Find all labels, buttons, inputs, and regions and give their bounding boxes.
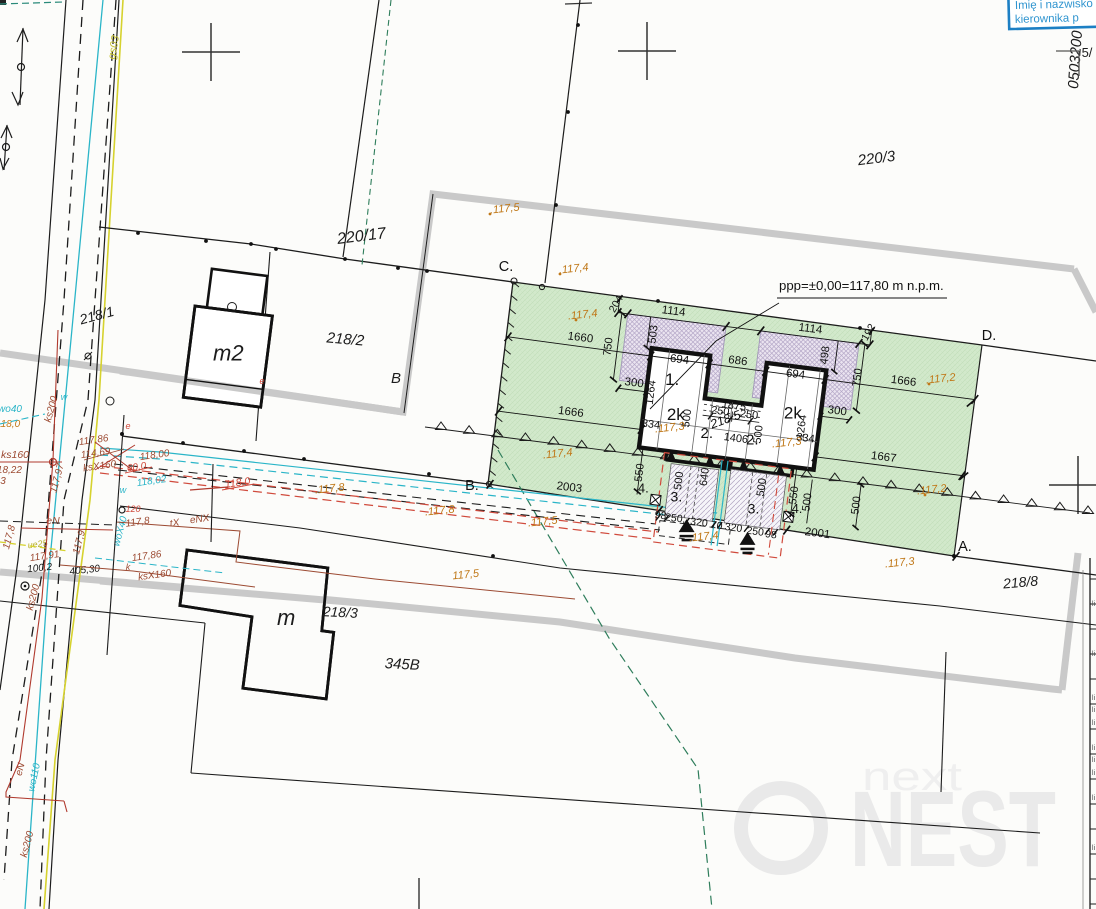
svg-text:3.: 3. xyxy=(748,500,760,516)
svg-text:w: w xyxy=(120,485,127,495)
svg-text:500: 500 xyxy=(849,496,863,516)
svg-text:500: 500 xyxy=(755,477,769,497)
svg-text:750: 750 xyxy=(851,368,865,388)
svg-text:li: li xyxy=(1092,843,1096,852)
svg-text:next: next xyxy=(862,755,962,799)
svg-text:118,22: 118,22 xyxy=(0,465,22,476)
svg-text:694: 694 xyxy=(785,367,806,381)
svg-text:m2: m2 xyxy=(213,341,244,366)
svg-text:m: m xyxy=(277,605,295,630)
svg-text:3: 3 xyxy=(0,476,6,487)
svg-text:A.: A. xyxy=(958,539,972,555)
svg-text:320: 320 xyxy=(724,521,743,535)
svg-text:500: 500 xyxy=(800,492,814,512)
svg-text:li: li xyxy=(1092,793,1096,802)
svg-text:503: 503 xyxy=(646,324,660,344)
svg-text:kierownika p: kierownika p xyxy=(1015,12,1079,26)
svg-text:345B: 345B xyxy=(384,655,420,674)
svg-text:li: li xyxy=(1092,718,1096,727)
svg-text:ks160: ks160 xyxy=(1,449,29,461)
svg-text:li: li xyxy=(1092,649,1096,658)
svg-text:4.: 4. xyxy=(792,501,803,516)
svg-text:250: 250 xyxy=(746,525,765,539)
svg-text:li: li xyxy=(1092,743,1096,752)
svg-text:98: 98 xyxy=(764,528,777,541)
svg-text:e: e xyxy=(259,376,264,386)
svg-text:218/2: 218/2 xyxy=(325,329,366,349)
svg-text:686: 686 xyxy=(728,354,749,368)
svg-text:4.: 4. xyxy=(638,480,649,495)
svg-text:750: 750 xyxy=(601,337,615,357)
svg-text:300: 300 xyxy=(827,404,848,418)
svg-text:li: li xyxy=(1092,599,1096,608)
svg-text:5/: 5/ xyxy=(1082,45,1093,60)
svg-text:300: 300 xyxy=(624,376,645,390)
svg-text:li: li xyxy=(1092,705,1096,714)
svg-text:B: B xyxy=(391,370,401,387)
svg-text:wo40: wo40 xyxy=(0,404,22,415)
svg-text:li: li xyxy=(1092,755,1096,764)
svg-text:218/8: 218/8 xyxy=(1001,573,1039,592)
svg-text:D.: D. xyxy=(982,328,997,344)
svg-text:694: 694 xyxy=(669,353,690,367)
svg-text:1.: 1. xyxy=(665,370,679,389)
svg-text:3.: 3. xyxy=(671,489,683,505)
svg-text:218/3: 218/3 xyxy=(321,603,358,621)
svg-text:li: li xyxy=(1092,768,1096,777)
svg-text:C.: C. xyxy=(499,259,514,275)
svg-text:120: 120 xyxy=(125,504,140,514)
svg-text:2.: 2. xyxy=(746,432,759,449)
svg-text:ppp=±0,00=117,80 m n.p.m.: ppp=±0,00=117,80 m n.p.m. xyxy=(779,278,944,293)
svg-text:e: e xyxy=(125,421,130,431)
svg-text:2k: 2k xyxy=(784,404,802,423)
svg-text:320: 320 xyxy=(690,516,709,530)
svg-text:w: w xyxy=(61,392,68,402)
svg-text:tX: tX xyxy=(169,517,180,529)
svg-text:498: 498 xyxy=(818,345,832,365)
svg-text:640: 640 xyxy=(698,467,712,487)
svg-text:li: li xyxy=(1092,693,1096,702)
svg-text:B.: B. xyxy=(465,478,479,494)
